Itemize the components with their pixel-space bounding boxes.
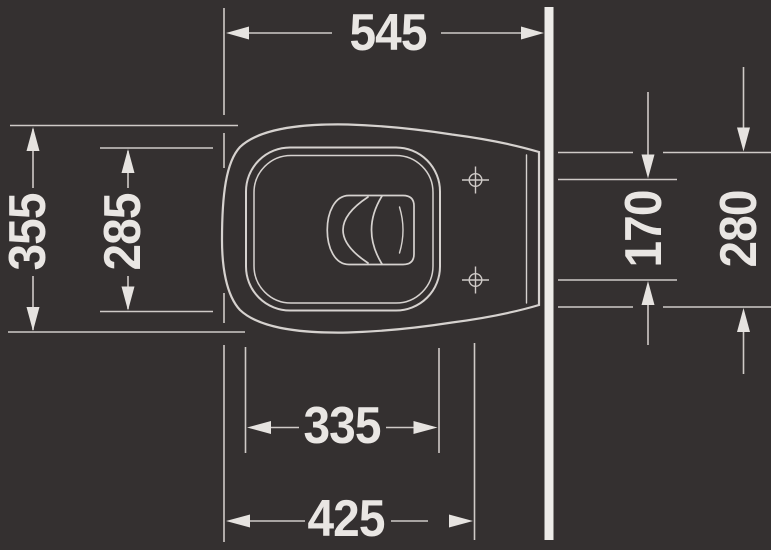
dim-label-425: 425 [304, 493, 389, 545]
toilet-top-view-drawing [0, 0, 771, 550]
dim-label-545: 545 [346, 7, 431, 59]
dim-label-355: 355 [2, 190, 54, 275]
mounting-hole-bottom [462, 267, 489, 294]
mounting-hole-markers [462, 167, 489, 294]
mounting-hole-top [462, 167, 489, 194]
wall-line [545, 7, 554, 540]
drain-outlet [327, 196, 414, 265]
dim-label-335: 335 [300, 400, 385, 452]
technical-drawing: 545 355 285 170 280 335 425 [0, 0, 771, 550]
dim-label-285: 285 [97, 190, 149, 275]
dim-label-280: 280 [713, 187, 765, 272]
dim-label-170: 170 [618, 187, 670, 272]
